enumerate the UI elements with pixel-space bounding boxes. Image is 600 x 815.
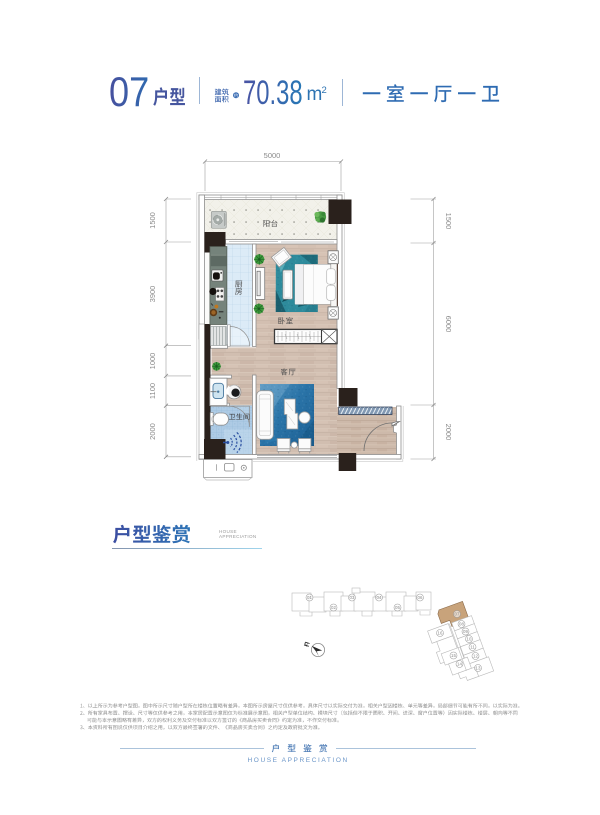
svg-text:04: 04 xyxy=(377,595,382,600)
svg-text:10: 10 xyxy=(467,637,472,642)
svg-text:03: 03 xyxy=(350,595,355,600)
svg-text:07: 07 xyxy=(455,612,460,617)
svg-text:16: 16 xyxy=(438,631,443,636)
svg-text:12: 12 xyxy=(473,654,478,659)
svg-text:1500: 1500 xyxy=(148,212,157,229)
svg-text:15: 15 xyxy=(451,653,456,658)
svg-text:2000: 2000 xyxy=(444,424,453,441)
svg-text:1000: 1000 xyxy=(148,353,157,370)
svg-text:13: 13 xyxy=(476,666,481,671)
svg-text:6000: 6000 xyxy=(444,316,453,333)
svg-text:2000: 2000 xyxy=(148,423,157,440)
svg-text:09: 09 xyxy=(463,629,468,634)
svg-text:1100: 1100 xyxy=(148,383,157,399)
svg-text:01: 01 xyxy=(307,595,312,600)
svg-text:5000: 5000 xyxy=(264,151,281,160)
svg-text:06: 06 xyxy=(418,595,423,600)
svg-text:11: 11 xyxy=(470,645,475,650)
svg-text:05: 05 xyxy=(395,605,400,610)
svg-text:08: 08 xyxy=(459,622,464,627)
svg-text:3900: 3900 xyxy=(148,286,157,303)
svg-text:14: 14 xyxy=(457,662,462,667)
svg-text:N: N xyxy=(303,642,309,649)
svg-text:1500: 1500 xyxy=(444,213,453,230)
svg-text:02: 02 xyxy=(331,605,336,610)
